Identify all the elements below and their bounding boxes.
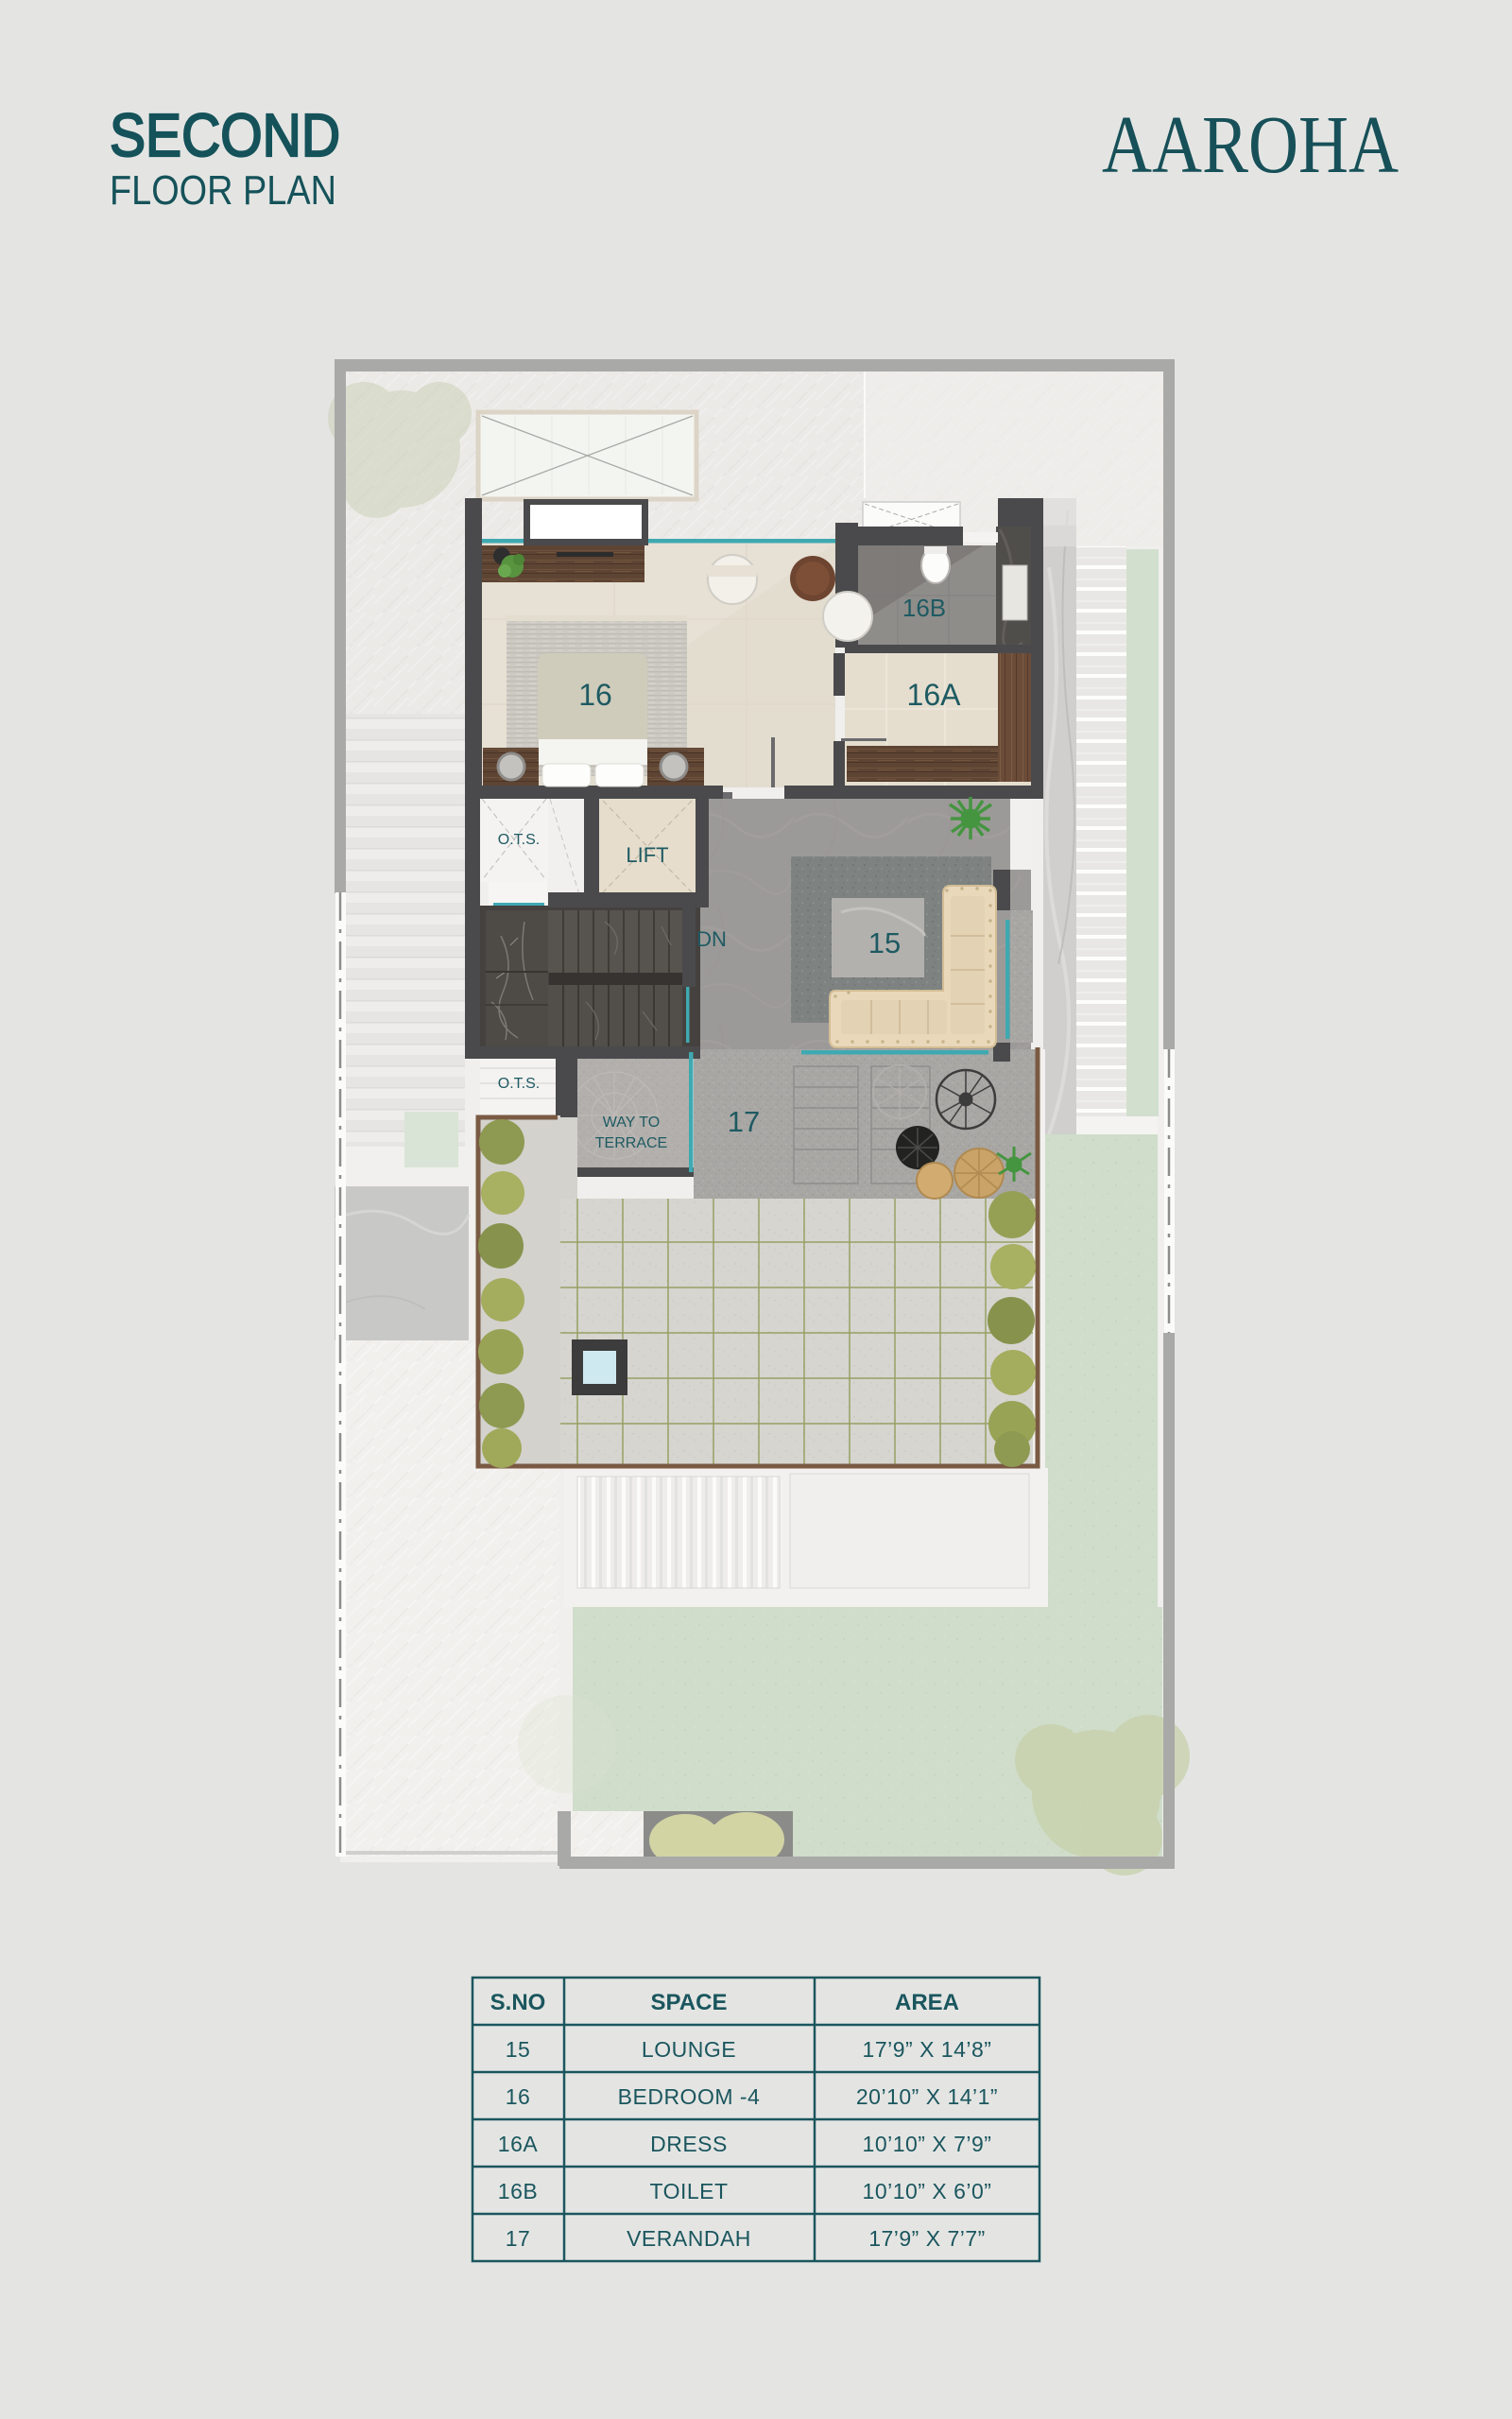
svg-text:17: 17 bbox=[728, 1105, 760, 1138]
svg-text:16B: 16B bbox=[902, 594, 946, 622]
svg-text:17’9” X 7’7”: 17’9” X 7’7” bbox=[868, 2226, 986, 2251]
svg-text:DRESS: DRESS bbox=[650, 2132, 728, 2156]
svg-text:AREA: AREA bbox=[895, 1990, 959, 2015]
svg-text:17: 17 bbox=[506, 2226, 531, 2251]
svg-text:TOILET: TOILET bbox=[649, 2179, 728, 2203]
svg-text:AAROHA: AAROHA bbox=[1102, 98, 1399, 190]
svg-text:O.T.S.: O.T.S. bbox=[498, 1076, 540, 1092]
svg-text:20’10” X 14’1”: 20’10” X 14’1” bbox=[856, 2084, 998, 2109]
svg-text:LOUNGE: LOUNGE bbox=[642, 2037, 736, 2062]
svg-text:16A: 16A bbox=[907, 678, 962, 712]
svg-text:10’10” X 7’9”: 10’10” X 7’9” bbox=[863, 2132, 992, 2156]
svg-text:15: 15 bbox=[506, 2037, 531, 2062]
svg-text:BEDROOM -4: BEDROOM -4 bbox=[618, 2084, 761, 2109]
svg-text:WAY TO: WAY TO bbox=[603, 1114, 660, 1131]
svg-text:16: 16 bbox=[578, 678, 612, 712]
svg-text:VERANDAH: VERANDAH bbox=[627, 2226, 751, 2251]
svg-text:10’10” X 6’0”: 10’10” X 6’0” bbox=[863, 2179, 992, 2203]
svg-text:LIFT: LIFT bbox=[626, 843, 668, 867]
svg-text:16: 16 bbox=[506, 2084, 531, 2109]
svg-text:SPACE: SPACE bbox=[651, 1990, 728, 2015]
svg-text:TERRACE: TERRACE bbox=[595, 1135, 667, 1151]
svg-text:17’9” X 14’8”: 17’9” X 14’8” bbox=[863, 2037, 992, 2062]
svg-text:16A: 16A bbox=[498, 2132, 539, 2156]
svg-text:16B: 16B bbox=[498, 2179, 538, 2203]
svg-text:FLOOR PLAN: FLOOR PLAN bbox=[110, 167, 336, 214]
svg-text:15: 15 bbox=[868, 926, 901, 959]
svg-text:S.NO: S.NO bbox=[490, 1990, 546, 2015]
svg-text:DN: DN bbox=[696, 927, 727, 951]
svg-text:SECOND: SECOND bbox=[110, 101, 340, 169]
svg-text:O.T.S.: O.T.S. bbox=[498, 832, 540, 848]
